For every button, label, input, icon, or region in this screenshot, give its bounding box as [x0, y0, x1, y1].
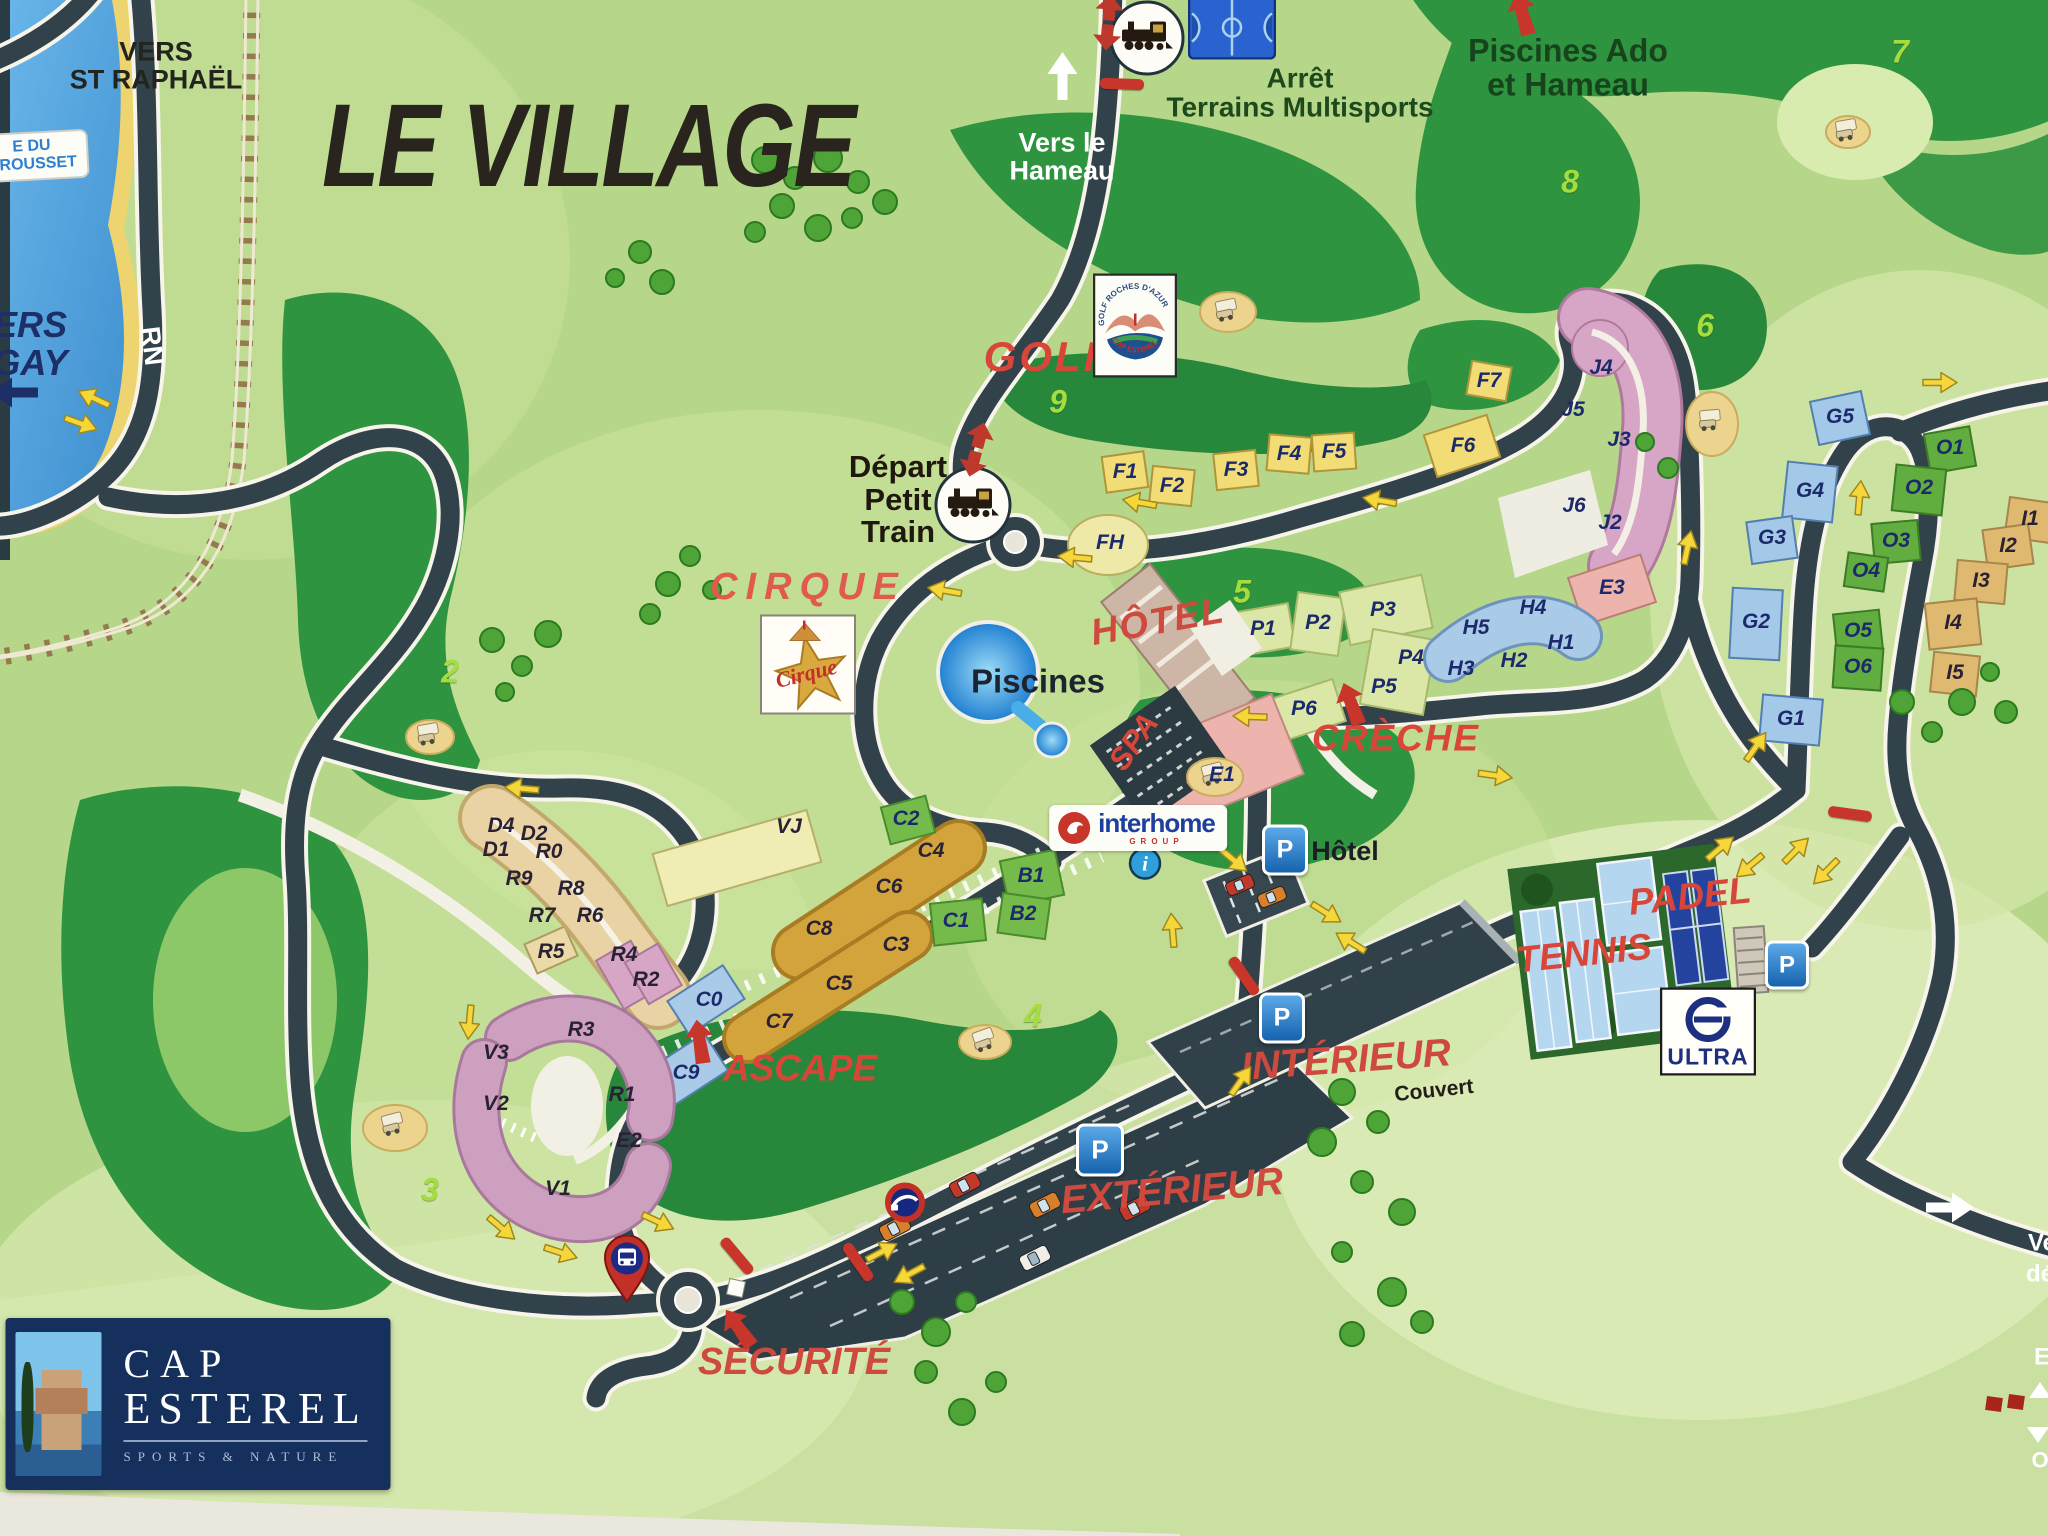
- map-base: [0, 0, 2048, 1536]
- building-G3: G3: [1758, 526, 1786, 550]
- parking-icon: P: [1262, 825, 1308, 876]
- building-R7: R7: [529, 904, 556, 928]
- label-vers-le-hameau: Vers leHameau: [1009, 129, 1114, 186]
- map-title: LE VILLAGE: [322, 78, 854, 214]
- building-G1: G1: [1777, 707, 1805, 731]
- svg-text:i: i: [1142, 852, 1148, 876]
- legend-chip: [2007, 1394, 2025, 1410]
- building-R5: R5: [538, 940, 565, 964]
- multisports-court-icon: [1188, 0, 1276, 65]
- building-R4: R4: [611, 943, 638, 967]
- building-P1: P1: [1250, 617, 1276, 641]
- cirque-logo: Cirque: [760, 615, 856, 720]
- building-B1: B1: [1018, 864, 1045, 888]
- building-G5: G5: [1826, 405, 1854, 429]
- direction-arrow: [1359, 479, 1402, 516]
- building-H1: H1: [1548, 631, 1575, 655]
- building-H4: H4: [1520, 596, 1547, 620]
- building-I3: I3: [1972, 569, 1990, 593]
- building-R0: R0: [536, 840, 563, 864]
- hole-number-2: 2: [441, 654, 459, 691]
- building-F3: F3: [1224, 458, 1249, 482]
- parking-icon: P: [1765, 941, 1809, 990]
- building-E2: E2: [616, 1129, 642, 1153]
- parking-icon: P: [1259, 993, 1305, 1044]
- building-P3: P3: [1370, 598, 1396, 622]
- golf-logo: GOLF ROCHES D'AZURCAP ESTEREL: [1093, 274, 1177, 383]
- label-piscines: Piscines: [971, 665, 1105, 700]
- label-piscines-ado: Piscines Adoet Hameau: [1468, 34, 1668, 101]
- direction-arrow: [450, 1002, 484, 1043]
- building-R2: R2: [633, 968, 660, 992]
- building-I2: I2: [1999, 534, 2017, 558]
- barrier-gate-icon: [883, 1181, 927, 1230]
- building-C2: C2: [893, 807, 920, 831]
- building-P2: P2: [1305, 611, 1331, 635]
- direction-arrow: [1230, 698, 1269, 730]
- label-securite: SÉCURITÉ: [698, 1343, 890, 1383]
- direction-arrow: [1055, 538, 1096, 572]
- building-E3: E3: [1599, 576, 1625, 600]
- label-parking-hotel-label: Hôtel: [1311, 837, 1379, 865]
- building-C8: C8: [806, 917, 833, 941]
- building-F2: F2: [1160, 474, 1185, 498]
- svg-text:ULTRA: ULTRA: [1667, 1044, 1748, 1070]
- building-I1: I1: [2021, 507, 2039, 531]
- building-P6: P6: [1291, 697, 1317, 721]
- hole-number-4: 4: [1024, 998, 1042, 1035]
- direction-arrow: [1474, 760, 1516, 796]
- building-J6: J6: [1562, 494, 1585, 518]
- building-C3: C3: [883, 933, 910, 957]
- building-D4: D4: [488, 814, 515, 838]
- direction-arrow: [1119, 481, 1162, 518]
- building-V3: V3: [483, 1041, 509, 1065]
- building-V1: V1: [545, 1177, 571, 1201]
- building-C6: C6: [876, 875, 903, 899]
- label-fragment-de: dé: [2026, 1261, 2048, 1286]
- direction-arrow: [1921, 370, 1959, 401]
- building-H2: H2: [1501, 649, 1528, 673]
- hole-number-7: 7: [1891, 34, 1909, 71]
- building-C1: C1: [943, 909, 970, 933]
- label-vers-st-raphael: VERSST RAPHAËL: [70, 38, 243, 95]
- label-fragment-o: O: [2031, 1448, 2048, 1471]
- building-P5: P5: [1371, 675, 1397, 699]
- building-V2: V2: [483, 1092, 509, 1116]
- building-O4: O4: [1852, 559, 1880, 583]
- hole-number-6: 6: [1696, 308, 1714, 345]
- building-FH: FH: [1096, 531, 1124, 555]
- building-O3: O3: [1882, 529, 1910, 553]
- cap-esterel-logo: CAPESTERELSPORTS & NATURE: [6, 1318, 391, 1490]
- cap-esterel-photo: [16, 1332, 102, 1476]
- road-closed-bar: [1100, 78, 1144, 91]
- label-fragment-e: E: [2034, 1344, 2048, 1369]
- building-F7: F7: [1477, 369, 1502, 393]
- building-C0: C0: [696, 988, 723, 1012]
- direction-arrow: [502, 769, 543, 803]
- vers-agay-arrow: [0, 371, 40, 410]
- building-C4: C4: [918, 839, 945, 863]
- interhome-logo: interhomeGROUP: [1049, 805, 1227, 851]
- building-J4: J4: [1589, 356, 1612, 380]
- building-R6: R6: [577, 904, 604, 928]
- direction-arrow: [1158, 910, 1192, 951]
- route-arrow-white: [1924, 1191, 1976, 1230]
- building-I4: I4: [1944, 611, 1962, 635]
- sign-pourrousset: E DURROUSSET: [0, 129, 90, 184]
- building-P4: P4: [1398, 646, 1424, 670]
- info-icon: i: [1128, 847, 1162, 886]
- building-C7: C7: [766, 1010, 793, 1034]
- ultra-logo: ULTRA: [1660, 988, 1756, 1081]
- building-R9: R9: [506, 867, 533, 891]
- label-creche: CRÈCHE: [1312, 720, 1480, 759]
- label-cirque: CIRQUE: [710, 568, 906, 608]
- building-J3: J3: [1607, 428, 1630, 452]
- label-ascape: ASCAPE: [723, 1050, 877, 1089]
- building-H3: H3: [1448, 657, 1475, 681]
- building-R1: R1: [609, 1083, 636, 1107]
- building-F6: F6: [1451, 434, 1476, 458]
- parking-icon: P: [1076, 1124, 1124, 1177]
- building-VJ: VJ: [776, 815, 802, 839]
- building-O5: O5: [1844, 619, 1872, 643]
- building-B2: B2: [1010, 902, 1037, 926]
- route-arrow-white: [1046, 50, 1085, 102]
- building-O2: O2: [1905, 476, 1933, 500]
- bus-stop-icon: [601, 1236, 653, 1309]
- petit-train-icon: [1120, 18, 1174, 59]
- building-I5: I5: [1946, 661, 1964, 685]
- building-O6: O6: [1844, 655, 1872, 679]
- building-G2: G2: [1742, 610, 1770, 634]
- label-arret-terrains-multisports: ArrêtTerrains Multisports: [1166, 64, 1433, 123]
- building-D1: D1: [483, 838, 510, 862]
- hole-number-8: 8: [1561, 164, 1579, 201]
- legend-triangle-up: [2029, 1382, 2048, 1398]
- label-fragment-ve: Ve: [2028, 1230, 2048, 1255]
- building-G4: G4: [1796, 479, 1824, 503]
- building-C5: C5: [826, 972, 853, 996]
- building-R8: R8: [558, 877, 585, 901]
- building-J5: J5: [1561, 398, 1584, 422]
- legend-triangle-down: [2027, 1427, 2048, 1443]
- building-J2: J2: [1598, 511, 1621, 535]
- building-F5: F5: [1322, 440, 1347, 464]
- building-E1: E1: [1209, 763, 1235, 787]
- label-depart-petit-train: DépartPetitTrain: [849, 451, 947, 549]
- legend-chip: [1985, 1396, 2003, 1412]
- direction-arrow: [924, 569, 967, 606]
- building-F4: F4: [1277, 442, 1302, 466]
- building-R3: R3: [568, 1018, 595, 1042]
- petit-train-icon: [946, 485, 1000, 526]
- hole-number-5: 5: [1233, 574, 1251, 611]
- direction-arrow: [1845, 478, 1879, 519]
- resort-map: LE VILLAGE VERSST RAPHAËLVers leHameauAr…: [0, 0, 2048, 1536]
- label-rn: RN: [136, 325, 169, 367]
- building-O1: O1: [1936, 436, 1964, 460]
- building-H5: H5: [1463, 616, 1490, 640]
- hole-number-9: 9: [1049, 384, 1067, 421]
- building-F1: F1: [1113, 460, 1138, 484]
- hole-number-3: 3: [421, 1172, 439, 1209]
